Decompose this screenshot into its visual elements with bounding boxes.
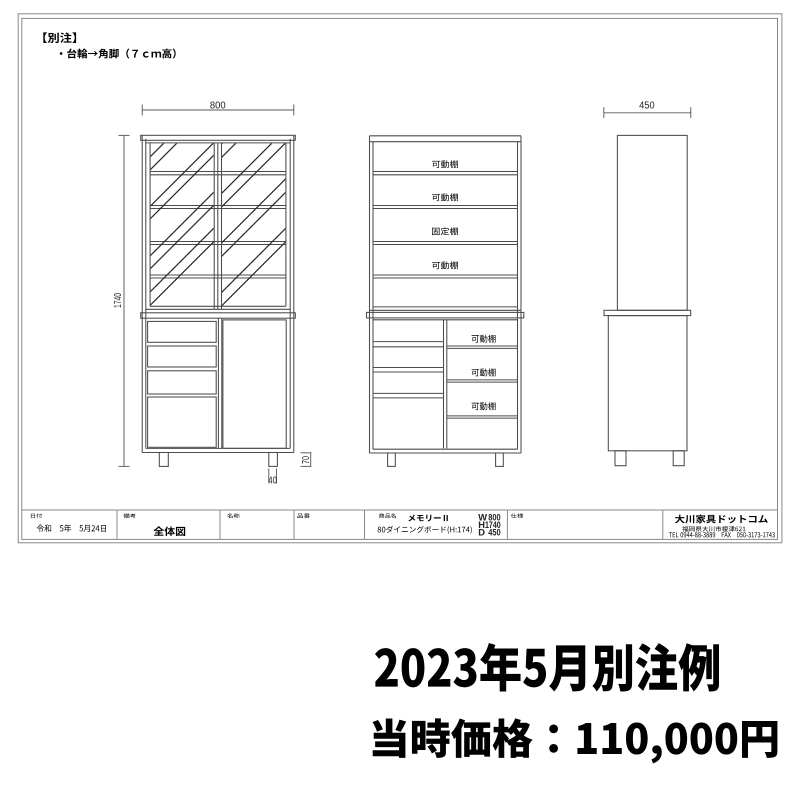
svg-text:1740: 1740 (113, 293, 124, 308)
svg-text:800: 800 (210, 101, 226, 112)
svg-text:450: 450 (488, 528, 500, 538)
svg-text:70: 70 (301, 456, 312, 464)
svg-text:D: D (478, 528, 485, 538)
svg-text:450: 450 (639, 101, 655, 112)
svg-text:40: 40 (268, 474, 277, 486)
